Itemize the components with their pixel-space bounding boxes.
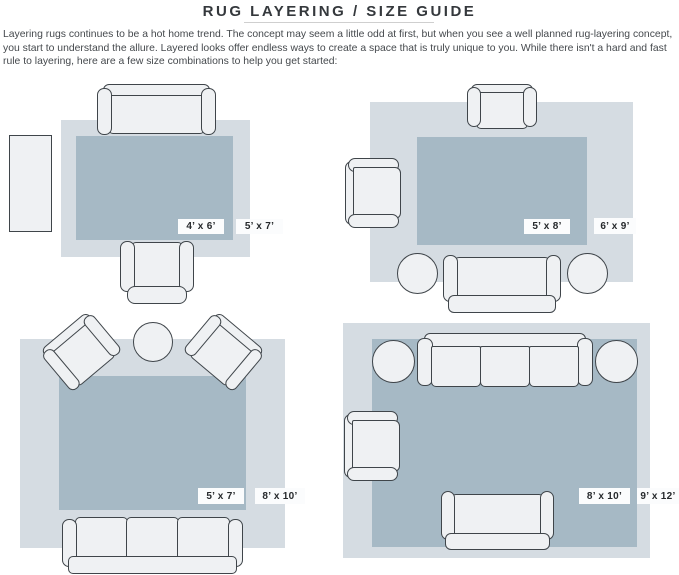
loveseat-icon (441, 491, 554, 550)
inner-rug-size-label: 5’ x 7’ (198, 488, 244, 504)
round-ottoman-icon (567, 253, 608, 294)
sofa-arm-right (577, 338, 593, 386)
loveseat-back (445, 533, 550, 550)
armchair-seat (353, 167, 401, 219)
sofa-cushion (431, 346, 481, 387)
rug-size-guide-infographic: RUG LAYERING / SIZE GUIDE Layering rugs … (0, 0, 679, 575)
outer-rug-size-label: 9’ x 12’ (637, 488, 679, 504)
sofa-cushion (75, 517, 128, 560)
inner-rug-size-label: 8’ x 10’ (579, 488, 630, 504)
armchair-seat (476, 92, 528, 129)
armchair-icon (467, 84, 537, 129)
sofa-seat (454, 257, 550, 297)
armchair-seat (131, 242, 183, 290)
armchair-icon (344, 411, 404, 481)
armchair-seat (352, 420, 400, 472)
outer-rug-size-label: 5’ x 7’ (236, 219, 283, 234)
sofa-cushion (177, 517, 230, 560)
sofa-arm-left (97, 88, 112, 135)
inner-rug-size-label: 5’ x 8’ (524, 219, 570, 234)
three-seat-sofa-icon (417, 333, 593, 388)
sofa-icon (97, 84, 216, 135)
armchair-arm-left (467, 87, 481, 127)
page-title: RUG LAYERING / SIZE GUIDE (0, 3, 679, 20)
inner-rug-size-label: 4’ x 6’ (178, 219, 224, 234)
round-ottoman-icon (372, 340, 415, 383)
sofa-icon (443, 255, 561, 313)
sofa-back (448, 295, 556, 313)
armchair-icon (120, 241, 194, 304)
armchair-icon (345, 158, 405, 228)
armchair-arm-right (179, 241, 194, 292)
armchair-back (127, 286, 187, 304)
armchair-arm-right (523, 87, 537, 127)
armchair-arm-bottom (347, 467, 398, 481)
sofa-cushion (480, 346, 530, 387)
loveseat-seat (451, 494, 544, 536)
sofa-seat (108, 95, 205, 134)
console-table-icon (9, 135, 52, 232)
three-seat-sofa-icon (62, 517, 243, 574)
title-divider (244, 22, 434, 23)
round-ottoman-icon (595, 340, 638, 383)
sofa-arm-right (201, 88, 216, 135)
outer-rug-size-label: 8’ x 10’ (255, 488, 305, 504)
sofa-cushion (529, 346, 579, 387)
round-table-icon (133, 322, 173, 362)
sofa-cushion (126, 517, 179, 560)
armchair-arm-bottom (348, 214, 399, 228)
round-ottoman-icon (397, 253, 438, 294)
armchair-arm-left (120, 241, 135, 292)
intro-paragraph: Layering rugs continues to be a hot home… (3, 28, 677, 69)
sofa-back (68, 556, 237, 574)
outer-rug-size-label: 6’ x 9’ (594, 218, 636, 234)
